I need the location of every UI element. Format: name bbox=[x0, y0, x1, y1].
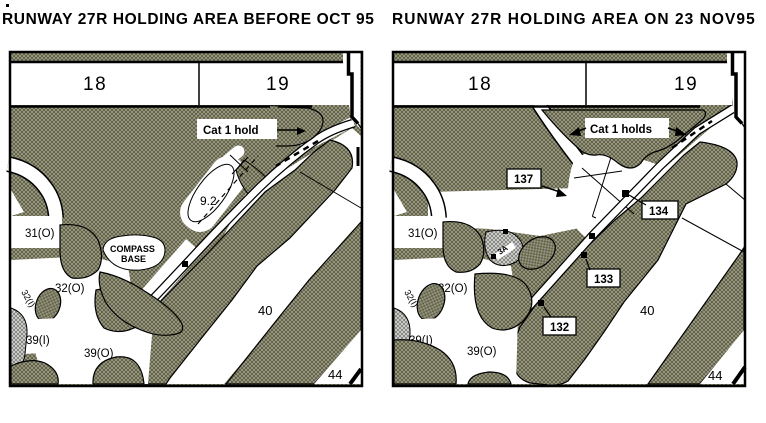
svg-text:9.2: 9.2 bbox=[200, 194, 217, 208]
svg-text:31(O): 31(O) bbox=[408, 228, 438, 240]
svg-text:Cat 1 hold: Cat 1 hold bbox=[203, 125, 259, 137]
svg-text:44: 44 bbox=[328, 367, 342, 382]
svg-text:18: 18 bbox=[83, 74, 107, 95]
svg-text:40: 40 bbox=[258, 303, 272, 318]
svg-text:39(O): 39(O) bbox=[84, 348, 114, 360]
svg-text:44: 44 bbox=[708, 368, 722, 383]
svg-text:39(I): 39(I) bbox=[26, 335, 50, 347]
svg-text:132: 132 bbox=[550, 322, 569, 334]
svg-text:137: 137 bbox=[514, 174, 533, 186]
svg-text:31(O): 31(O) bbox=[25, 228, 55, 240]
svg-text:133: 133 bbox=[594, 274, 613, 286]
svg-text:BASE: BASE bbox=[121, 254, 146, 264]
svg-text:COMPASS: COMPASS bbox=[110, 244, 155, 254]
svg-text:19: 19 bbox=[266, 74, 290, 95]
svg-text:Cat 1 holds: Cat 1 holds bbox=[590, 124, 652, 136]
svg-text:18: 18 bbox=[468, 74, 492, 95]
svg-text:40: 40 bbox=[640, 303, 654, 318]
svg-text:RUNWAY 27R HOLDING AREA BEFORE: RUNWAY 27R HOLDING AREA BEFORE OCT 95 bbox=[2, 11, 374, 28]
svg-text:39(O): 39(O) bbox=[467, 346, 497, 358]
svg-text:19: 19 bbox=[674, 74, 698, 95]
svg-text:RUNWAY 27R HOLDING AREA ON 23: RUNWAY 27R HOLDING AREA ON 23 NOV95 bbox=[392, 11, 756, 28]
svg-text:134: 134 bbox=[649, 206, 669, 218]
svg-text:32(O): 32(O) bbox=[55, 283, 85, 295]
